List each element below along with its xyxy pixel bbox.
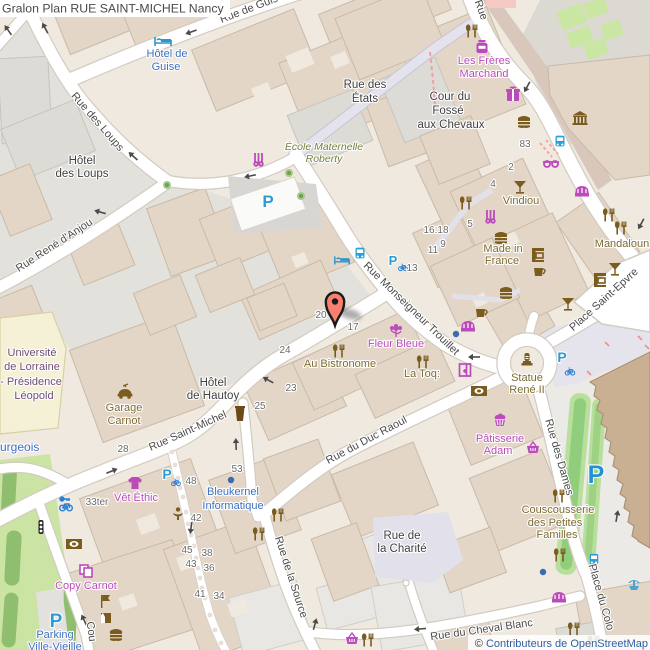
svg-text:53: 53 (231, 464, 243, 475)
svg-text:Hôtel: Hôtel (200, 377, 227, 389)
svg-text:4: 4 (490, 179, 496, 190)
svg-text:des Petites: des Petites (528, 517, 583, 529)
svg-text:20: 20 (315, 310, 327, 321)
svg-text:23: 23 (285, 383, 297, 394)
svg-text:36: 36 (203, 563, 215, 574)
svg-text:Mandaloun: Mandaloun (595, 238, 649, 250)
svg-text:Made in: Made in (483, 243, 522, 255)
svg-text:Marchand: Marchand (460, 68, 509, 80)
svg-text:Hôtel de: Hôtel de (147, 48, 188, 60)
svg-text:24: 24 (279, 345, 291, 356)
svg-text:Statue: Statue (511, 372, 543, 384)
svg-text:2: 2 (508, 162, 514, 173)
svg-text:Rue de: Rue de (383, 530, 420, 542)
svg-text:33ter: 33ter (86, 497, 109, 508)
svg-text:Les Frères: Les Frères (458, 55, 511, 67)
svg-text:83: 83 (519, 139, 531, 150)
svg-text:René II: René II (509, 384, 544, 396)
svg-text:Fossé: Fossé (432, 105, 463, 117)
svg-text:Pâtisserie: Pâtisserie (476, 433, 524, 445)
svg-text:de Hautoy: de Hautoy (187, 390, 240, 402)
svg-text:5: 5 (467, 219, 473, 230)
svg-text:Léopold: Léopold (14, 390, 53, 402)
svg-text:41: 41 (194, 589, 206, 600)
svg-text:Fleur Bleue: Fleur Bleue (368, 338, 424, 350)
svg-text:P: P (588, 461, 605, 489)
svg-text:Parking: Parking (36, 629, 73, 641)
svg-text:Vêt Éthic: Vêt Éthic (114, 491, 159, 504)
svg-text:P: P (557, 349, 566, 365)
svg-text:Roberty: Roberty (306, 153, 344, 165)
svg-text:48: 48 (185, 476, 197, 487)
svg-text:Université: Université (8, 347, 57, 359)
svg-text:Guise: Guise (152, 61, 181, 73)
svg-text:Informatique: Informatique (202, 500, 263, 512)
svg-text:16:18: 16:18 (423, 225, 448, 236)
svg-text:43: 43 (185, 559, 197, 570)
svg-text:13: 13 (406, 263, 418, 274)
svg-text:Carnot: Carnot (107, 415, 140, 427)
svg-text:45: 45 (181, 545, 193, 556)
svg-text:France: France (485, 255, 519, 267)
svg-text:38: 38 (201, 548, 213, 559)
svg-text:Au Bistronome: Au Bistronome (304, 358, 376, 370)
svg-text:- Présidence: - Présidence (0, 376, 62, 388)
svg-text:P: P (262, 192, 273, 211)
svg-text:42: 42 (190, 513, 202, 524)
svg-text:Adam: Adam (484, 445, 513, 457)
svg-text:États: États (352, 92, 378, 105)
svg-text:Ville-Vieille: Ville-Vieille (28, 641, 81, 650)
svg-text:urgeois: urgeois (0, 440, 39, 454)
svg-text:P: P (162, 466, 171, 482)
svg-text:Bleukernel: Bleukernel (207, 486, 259, 498)
svg-text:de Lorraine: de Lorraine (4, 361, 60, 373)
svg-text:Copy Carnot: Copy Carnot (55, 580, 117, 592)
svg-text:Gralon Plan RUE SAINT-MICHEL N: Gralon Plan RUE SAINT-MICHEL Nancy (2, 2, 224, 16)
svg-text:La Toq:: La Toq: (404, 368, 440, 380)
svg-text:28: 28 (117, 444, 129, 455)
svg-text:9: 9 (440, 239, 446, 250)
svg-text:Cour du: Cour du (430, 91, 471, 103)
svg-text:25: 25 (254, 401, 266, 412)
svg-text:Hôtel: Hôtel (69, 155, 96, 167)
svg-text:Rue des: Rue des (344, 79, 387, 91)
svg-text:Vindiou: Vindiou (503, 195, 540, 207)
svg-text:la Charité: la Charité (377, 543, 426, 555)
svg-text:Couscousserie: Couscousserie (522, 504, 595, 516)
svg-text:École Maternelle: École Maternelle (285, 140, 363, 153)
svg-text:des Loups: des Loups (55, 168, 108, 180)
svg-text:Garage: Garage (106, 402, 143, 414)
svg-text:P: P (389, 253, 398, 268)
svg-text:34: 34 (213, 591, 225, 602)
svg-text:© Contributeurs de OpenStreetM: © Contributeurs de OpenStreetMap (475, 638, 648, 650)
svg-text:Familles: Familles (537, 529, 578, 541)
svg-text:aux Chevaux: aux Chevaux (417, 119, 484, 131)
svg-text:11: 11 (428, 245, 439, 256)
svg-text:17: 17 (347, 322, 359, 333)
